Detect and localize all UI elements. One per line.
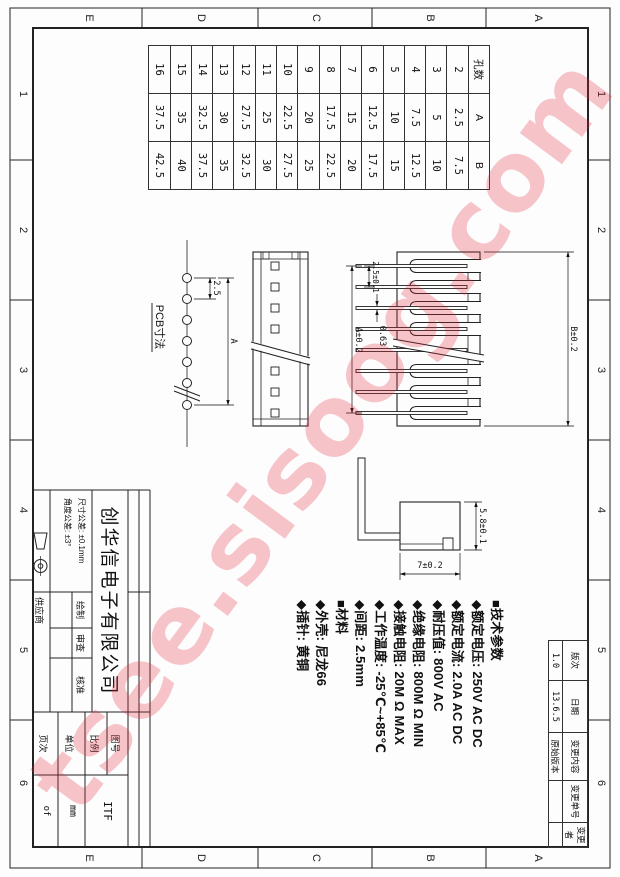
dim-pin-width: 0.63: [377, 326, 387, 346]
dim-body-length: B±0.2: [568, 326, 578, 352]
revision-table: 版次 日期 变更内容 变更单号 变更者 1.0 13.6.5 原始版本: [548, 640, 588, 848]
cell-b: 40: [170, 142, 191, 190]
col-header-holes: 孔数: [468, 46, 489, 94]
field-checked: 审查: [74, 628, 87, 658]
cell-holes: 15: [170, 46, 191, 94]
rev-version: 1.0: [549, 641, 563, 681]
cell-a: 10: [383, 94, 404, 142]
table-row: 15 35 40: [170, 46, 191, 190]
rev-changer: [549, 823, 563, 848]
tech-param-line: ◆耐压值: 800V AC: [428, 600, 447, 753]
pcb-dim-pitch: 2.5: [211, 280, 221, 295]
field-page: 页次: [37, 712, 50, 775]
projection-symbol-icon: [34, 533, 47, 576]
zone-number-bottom-4: 4: [17, 501, 29, 519]
zone-letter-left-c: C: [310, 9, 322, 27]
tolerance-note-1: 尺寸公差: ±0.1mm: [75, 498, 88, 563]
zone-number-bottom-6: 6: [17, 774, 29, 792]
cell-a: 22.5: [277, 94, 298, 142]
top-view: [251, 252, 310, 426]
zone-letter-right-b: B: [424, 849, 436, 867]
tech-param-line: ■技术参数: [487, 600, 506, 753]
table-row: 4 7.5 12.5: [404, 46, 425, 190]
table-row: 2 2.5 7.5: [447, 46, 468, 190]
cell-a: 17.5: [319, 94, 340, 142]
zone-number-bottom-3: 3: [17, 361, 29, 379]
rev-header-version: 版次: [563, 641, 588, 681]
table-row: 14 32.5 37.5: [191, 46, 212, 190]
tech-param-line: ■材料: [331, 600, 350, 753]
cell-a: 5: [426, 94, 447, 142]
zone-letter-right-c: C: [310, 849, 322, 867]
dim-height: 5.8±0.1: [477, 508, 487, 544]
cell-a: 12.5: [362, 94, 383, 142]
field-approved: 核准: [74, 658, 87, 712]
value-unit: mm: [67, 775, 78, 847]
table-row: 10 22.5 27.5: [277, 46, 298, 190]
tech-param-line: ◆插针: 黄铜: [293, 600, 312, 753]
zone-number-top-6: 6: [595, 774, 607, 792]
zone-number-bottom-1: 1: [17, 85, 29, 103]
table-row: 9 20 25: [298, 46, 319, 190]
zone-letter-right-e: E: [83, 849, 95, 867]
zone-number-top-2: 2: [595, 221, 607, 239]
cell-holes: 4: [404, 46, 425, 94]
side-view: [358, 458, 460, 550]
cell-a: 37.5: [149, 94, 170, 142]
tolerance-note-2: 角度公差: ±3°: [61, 498, 74, 546]
zone-letter-left-e: E: [83, 9, 95, 27]
rev-header-order-no: 变更单号: [563, 781, 588, 823]
cell-b: 12.5: [404, 142, 425, 190]
tech-param-line: ◆额定电流: 2.0A AC DC: [448, 600, 467, 753]
cell-a: 15: [340, 94, 361, 142]
field-drawing-no: 图号: [109, 712, 122, 775]
cell-holes: 14: [191, 46, 212, 94]
table-row: 7 15 20: [340, 46, 361, 190]
dim-pitch: 2.5±0.1: [371, 261, 380, 293]
cell-a: 20: [298, 94, 319, 142]
cell-holes: 13: [213, 46, 234, 94]
cell-b: 37.5: [191, 142, 212, 190]
table-header-row: 孔数 A B: [468, 46, 489, 190]
zone-letter-left-a: A: [532, 9, 544, 27]
tech-param-line: ◆绝缘电阻: 800M Ω MIN: [409, 600, 428, 753]
cell-a: 27.5: [234, 94, 255, 142]
cell-a: 30: [213, 94, 234, 142]
zone-letter-right-a: A: [532, 849, 544, 867]
table-row: 6 12.5 17.5: [362, 46, 383, 190]
table-row: 16 37.5 42.5: [149, 46, 170, 190]
table-row: 12 27.5 32.5: [234, 46, 255, 190]
cell-holes: 6: [362, 46, 383, 94]
cell-b: 10: [426, 142, 447, 190]
tech-param-line: ◆额定电压: 250V AC DC: [467, 600, 486, 753]
rev-header-changer: 变更者: [563, 823, 588, 848]
cell-b: 25: [298, 142, 319, 190]
table-row: 13 30 35: [213, 46, 234, 190]
cell-b: 17.5: [362, 142, 383, 190]
table-row: 11 25 30: [255, 46, 276, 190]
cell-holes: 16: [149, 46, 170, 94]
dim-depth: 7±0.2: [417, 561, 443, 571]
zone-letter-left-b: B: [424, 9, 436, 27]
tech-params: ■技术参数◆额定电压: 250V AC DC◆额定电流: 2.0A AC DC◆…: [293, 600, 506, 753]
cell-b: 27.5: [277, 142, 298, 190]
cell-a: 2.5: [447, 94, 468, 142]
zone-letter-right-d: D: [195, 849, 207, 867]
cell-holes: 3: [426, 46, 447, 94]
cell-a: 7.5: [404, 94, 425, 142]
revision-header-row: 版次 日期 变更内容 变更单号 变更者: [563, 641, 588, 848]
tech-param-line: ◆外壳: 尼龙66: [312, 600, 331, 753]
cell-holes: 10: [277, 46, 298, 94]
tech-param-line: ◆接触电阻: 20M Ω MAX: [390, 600, 409, 753]
zone-number-top-1: 1: [595, 85, 607, 103]
value-drawing-no: ITF: [101, 775, 114, 847]
zone-number-top-5: 5: [595, 641, 607, 659]
zone-number-bottom-5: 5: [17, 641, 29, 659]
cell-holes: 7: [340, 46, 361, 94]
cell-a: 25: [255, 94, 276, 142]
rev-content: 原始版本: [549, 733, 563, 781]
pin-count-table: 孔数 A B 2 2.5 7.5 3 5 10 4 7.5 12: [148, 45, 490, 190]
zone-letter-left-d: D: [195, 9, 207, 27]
cell-b: 15: [383, 142, 404, 190]
table-row: 8 17.5 22.5: [319, 46, 340, 190]
cell-a: 32.5: [191, 94, 212, 142]
drawing-sheet: B±0.2 A±0.2 2.5±0.1 0.63: [0, 0, 620, 877]
zone-number-bottom-2: 2: [17, 221, 29, 239]
col-header-b: B: [468, 142, 489, 190]
cell-b: 30: [255, 142, 276, 190]
zone-number-top-3: 3: [595, 361, 607, 379]
rev-header-content: 变更内容: [563, 733, 588, 781]
cell-holes: 5: [383, 46, 404, 94]
rev-header-date: 日期: [563, 681, 588, 733]
table-row: 5 10 15: [383, 46, 404, 190]
cell-holes: 8: [319, 46, 340, 94]
field-scale: 比例: [88, 712, 101, 775]
dim-span: A±0.2: [353, 327, 363, 353]
drawing-page: B±0.2 A±0.2 2.5±0.1 0.63: [0, 0, 620, 877]
cell-holes: 9: [298, 46, 319, 94]
cell-b: 42.5: [149, 142, 170, 190]
cell-b: 7.5: [447, 142, 468, 190]
rev-date: 13.6.5: [549, 681, 563, 733]
cell-b: 22.5: [319, 142, 340, 190]
cell-a: 35: [170, 94, 191, 142]
company-name: 创华信电子有限公司: [97, 492, 124, 710]
cell-holes: 11: [255, 46, 276, 94]
cell-b: 32.5: [234, 142, 255, 190]
tech-param-line: ◆间距: 2.5mm: [351, 600, 370, 753]
tech-param-line: ◆工作温度: -25℃~+85℃: [370, 600, 389, 753]
pcb-view: [174, 240, 200, 447]
cell-holes: 2: [447, 46, 468, 94]
table-row: 3 5 10: [426, 46, 447, 190]
pcb-dim-span: A: [228, 338, 238, 343]
cell-b: 35: [213, 142, 234, 190]
cell-holes: 12: [234, 46, 255, 94]
field-supplier: 供应商: [33, 597, 46, 624]
field-drafted: 绘制: [74, 592, 87, 628]
cell-b: 20: [340, 142, 361, 190]
revision-value-row: 1.0 13.6.5 原始版本: [549, 641, 563, 848]
rev-order-no: [549, 781, 563, 823]
zone-number-top-4: 4: [595, 501, 607, 519]
pcb-view-label: PCB寸法: [153, 305, 167, 350]
col-header-a: A: [468, 94, 489, 142]
field-unit: 单位: [63, 712, 76, 775]
value-page: of: [41, 775, 51, 847]
